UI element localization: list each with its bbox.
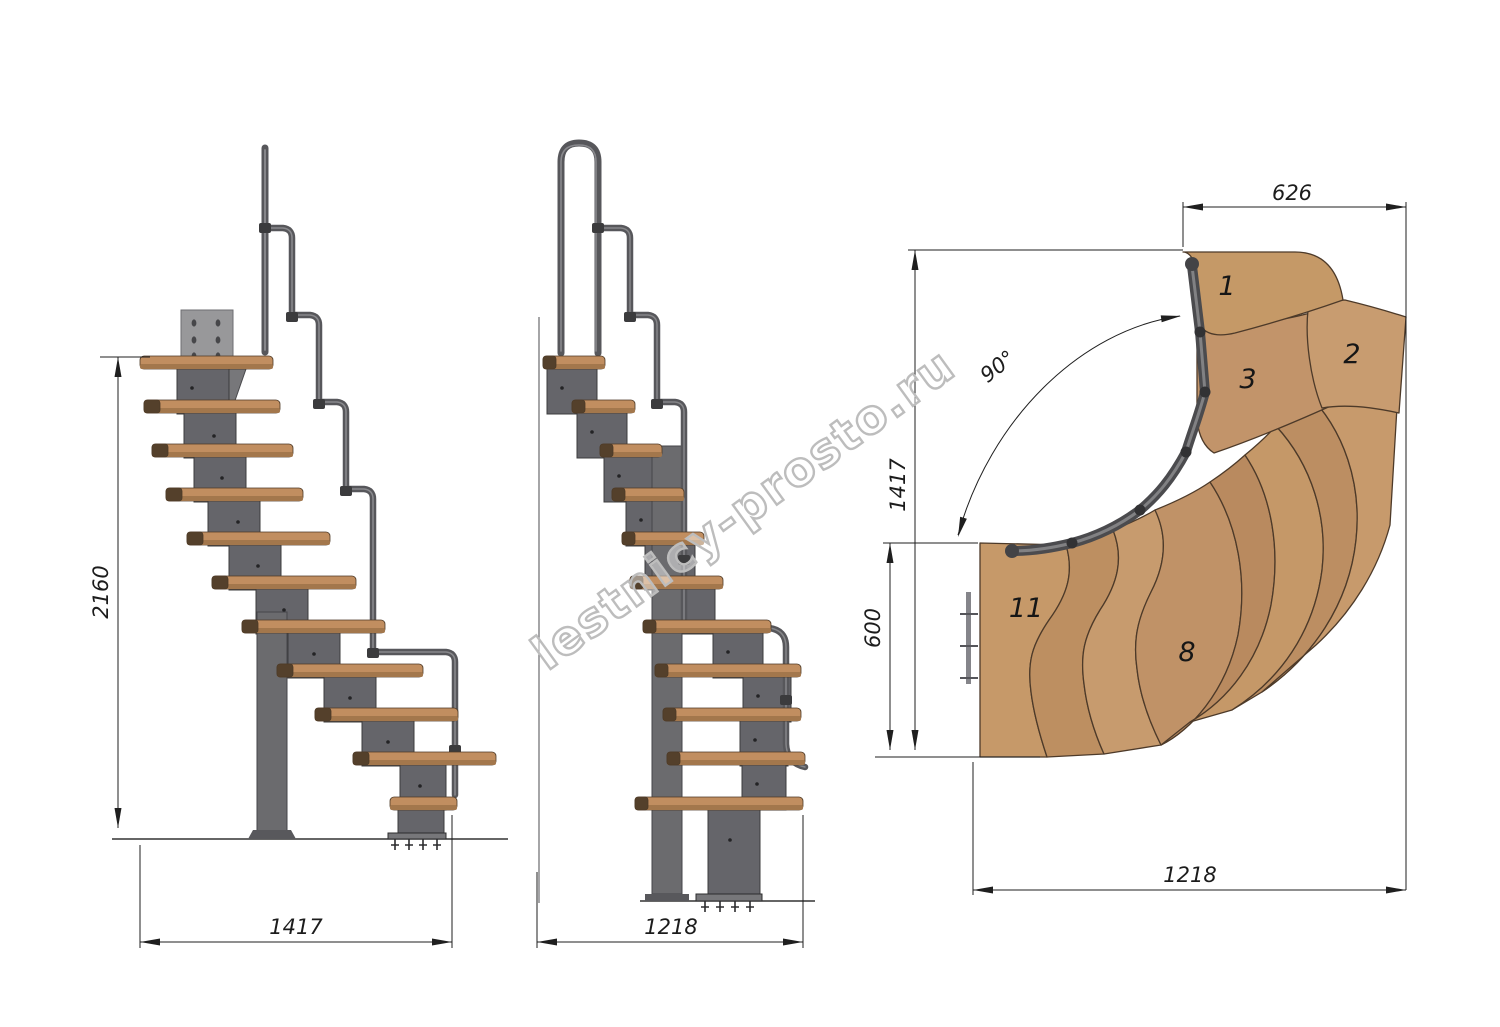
side-height-dim-label: 2160 [89,565,113,618]
plan-bottom-width-dim-label: 1218 [1163,863,1216,887]
tread-number-3: 3 [1239,364,1256,395]
plan-view: 1 2 3 8 11 626 [861,181,1406,895]
hairpin-rail [561,143,598,353]
front-width-dim-label: 1218 [644,915,697,939]
plan-angle-label: 90° [976,346,1020,388]
side-elevation-view: 2160 1417 [89,148,508,948]
rail-end-cap [1005,544,1019,558]
tread-number-1: 1 [1218,271,1235,302]
staircase-drawing: 2160 1417 [0,0,1500,1027]
technical-drawing-canvas: 2160 1417 [0,0,1500,1027]
dimension-side-height: 2160 [89,357,150,828]
tread-number-2: 2 [1343,339,1360,370]
plan-lower-width-dim-label: 600 [861,608,885,648]
plan-treads [980,252,1406,757]
plan-flight-length-dim-label: 1417 [886,458,910,512]
rail-top-cap [1185,257,1199,271]
tread-number-11: 11 [1009,593,1043,624]
plan-top-width-dim-label: 626 [1272,181,1312,205]
tread-number-8: 8 [1178,637,1195,668]
plan-wall-bracket [960,592,978,684]
base-plate [696,894,762,912]
side-width-dim-label: 1417 [269,915,323,939]
base-plate [388,833,446,850]
